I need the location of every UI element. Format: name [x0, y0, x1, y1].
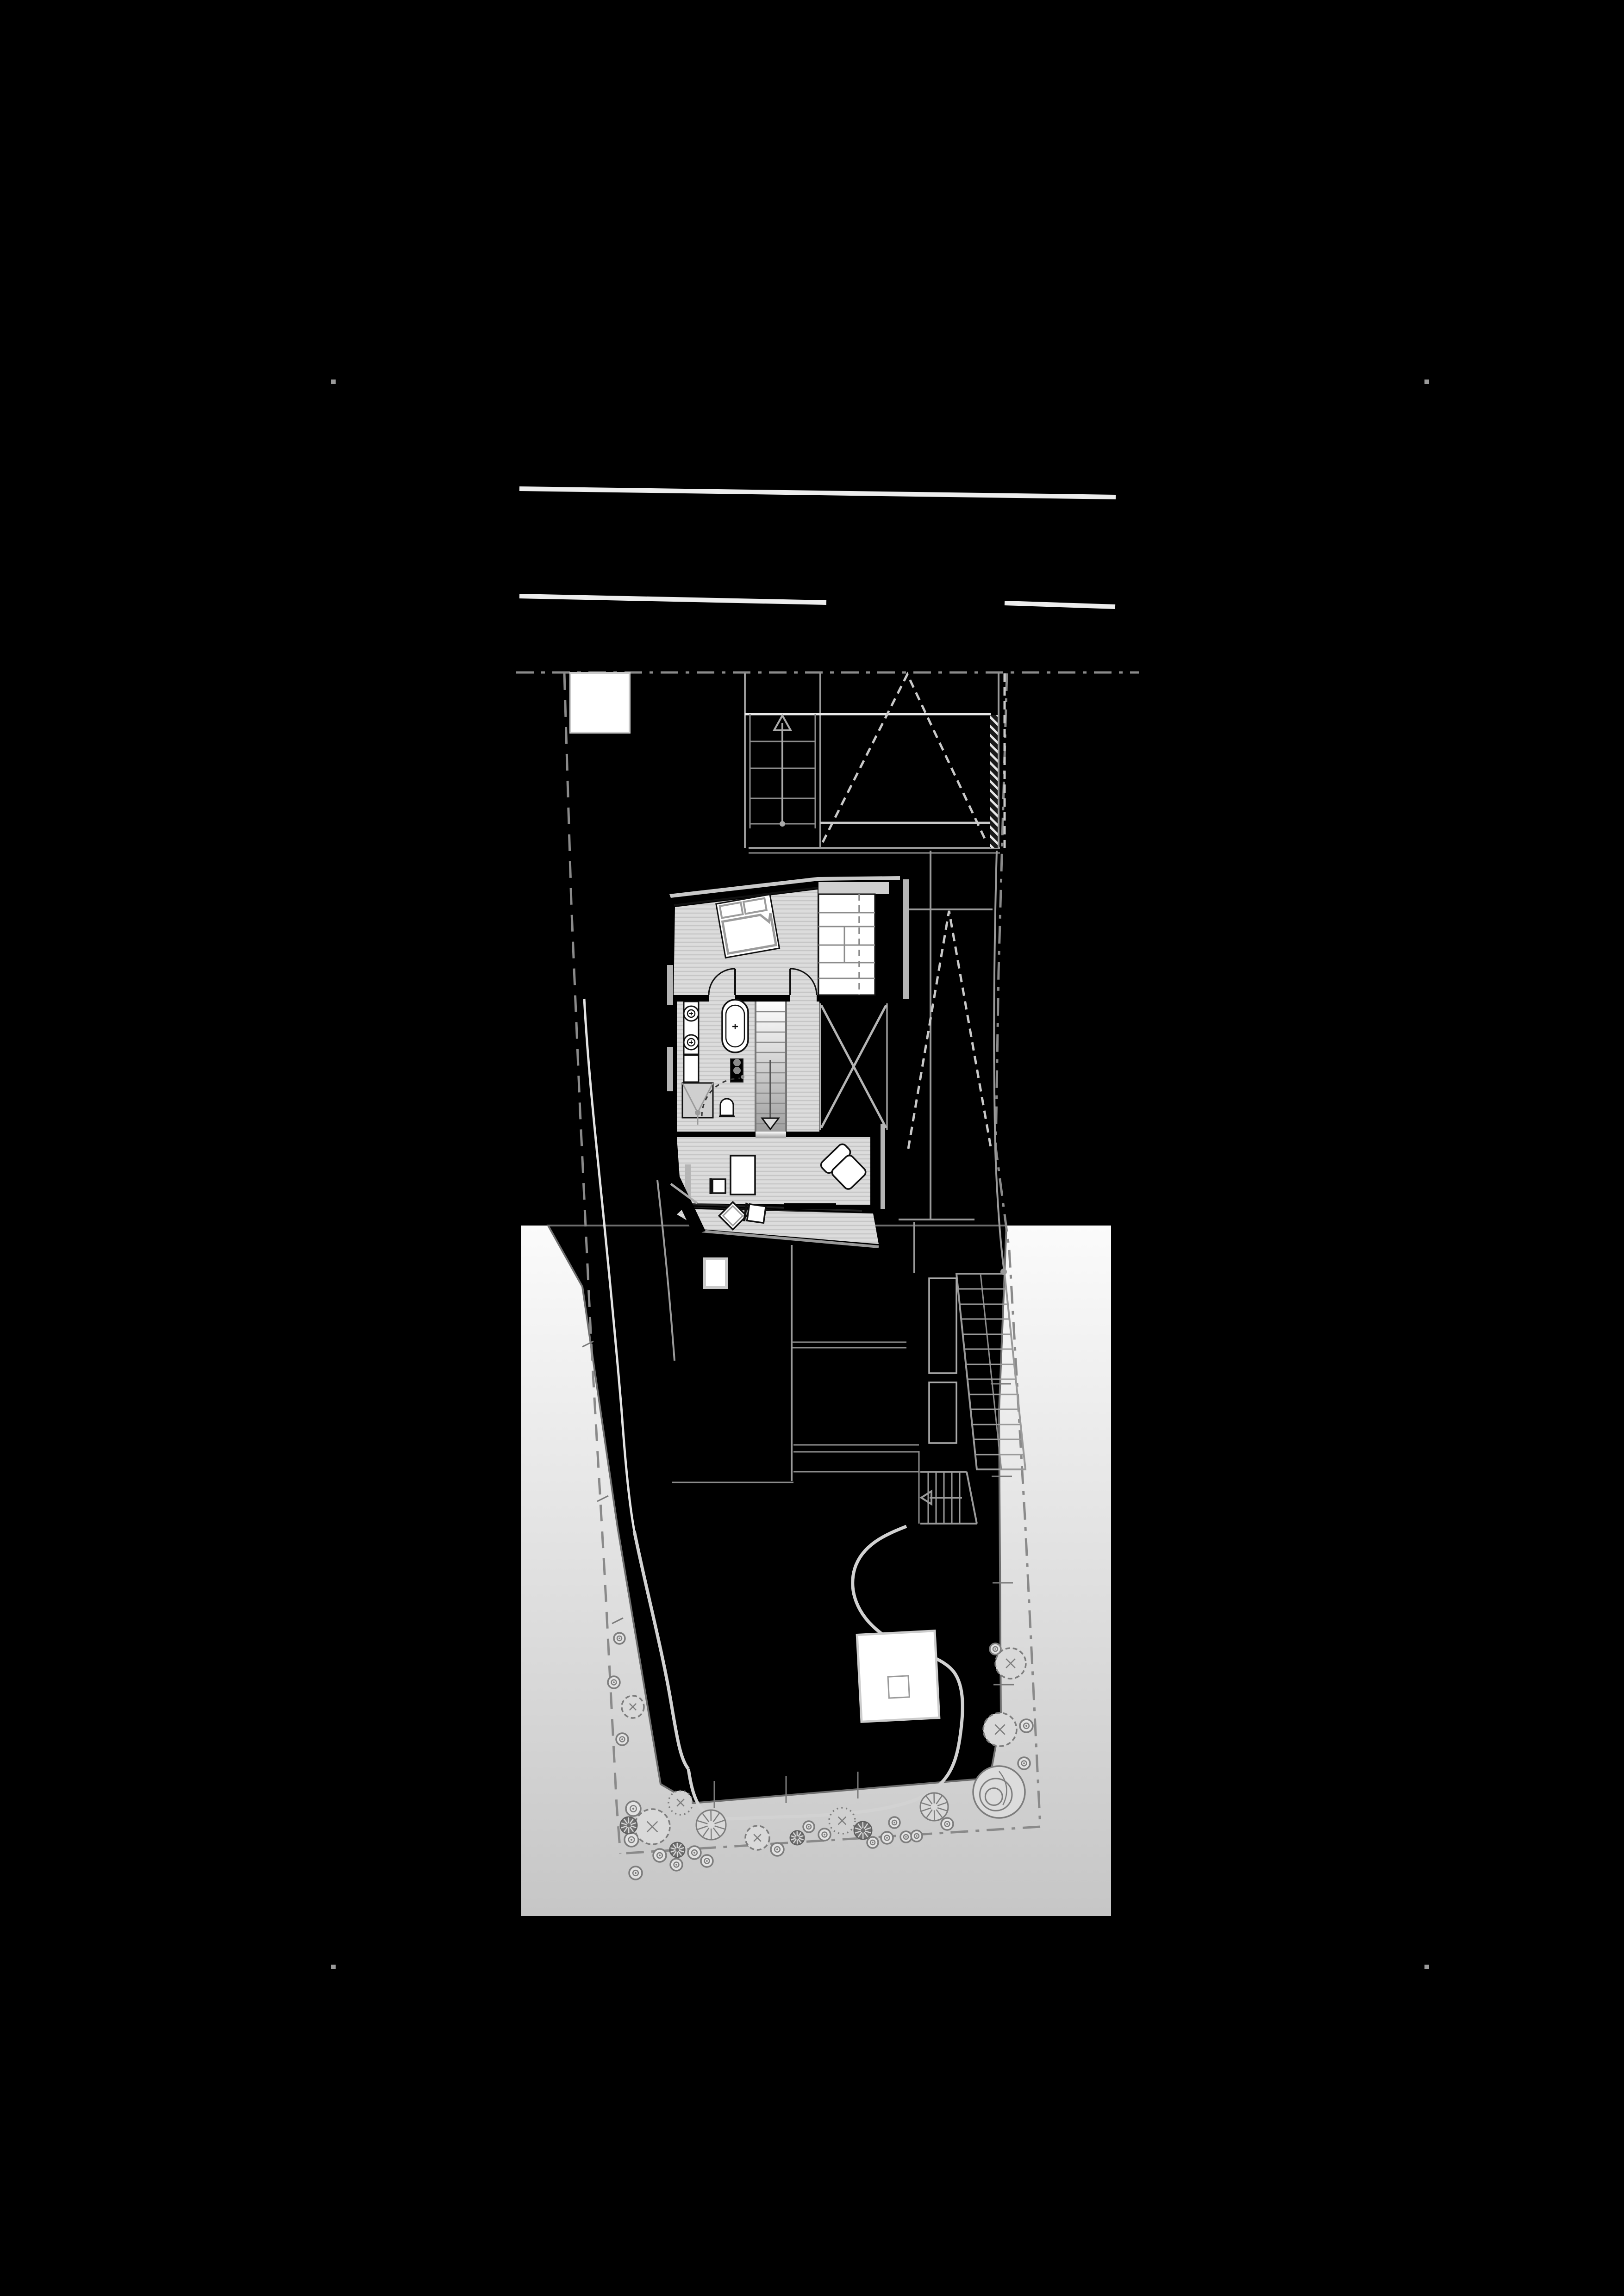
plant-cloud-icon: [983, 1713, 1017, 1746]
desk-chair: [711, 1178, 725, 1194]
plant-spiky-icon: [829, 1808, 855, 1834]
pillow: [743, 898, 767, 914]
plan-sheet: [0, 0, 1624, 2296]
door-panel: [784, 1203, 836, 1209]
plant-flower-icon: [881, 1832, 893, 1844]
bathtub: [722, 1000, 748, 1052]
sink: [684, 1006, 699, 1021]
toilet-icon: [719, 1099, 735, 1116]
plant-flower-icon: [1020, 1719, 1033, 1732]
pillow: [720, 902, 743, 918]
skylight: [705, 1259, 726, 1288]
registration-dot: [1424, 380, 1429, 384]
plant-flower-icon: [867, 1837, 878, 1848]
plant-cloud-icon: [635, 1809, 670, 1844]
landing-floor: [787, 1002, 819, 1132]
parking-pad: [570, 673, 630, 733]
plant-flower-icon: [653, 1849, 666, 1862]
terrace-chair: [744, 1203, 766, 1224]
plant-flower-icon: [941, 1818, 953, 1830]
site-plan-drawing: [0, 0, 1624, 2296]
stair-start-dot: [780, 821, 785, 827]
plant-flower-icon: [818, 1829, 831, 1841]
desk: [731, 1156, 755, 1195]
window-strip: [667, 965, 673, 1005]
middle-block: [668, 1000, 902, 1132]
plant-starburst-icon: [920, 1793, 948, 1821]
plant-flower-icon: [608, 1676, 620, 1688]
plant-starburst-dark-icon: [854, 1822, 872, 1839]
plant-cloud-icon: [745, 1826, 769, 1850]
plant-flower-icon: [900, 1831, 912, 1842]
plant-flower-icon: [670, 1859, 682, 1871]
house: [667, 876, 909, 1247]
plant-flower-icon: [629, 1867, 642, 1879]
plant-flower-icon: [1018, 1757, 1030, 1769]
void-cross-bracing: [819, 1003, 888, 1130]
pavilion: [857, 1631, 939, 1722]
plant-flower-icon: [803, 1821, 814, 1832]
plant-starburst-icon: [696, 1810, 726, 1840]
plant-flower-icon: [626, 1801, 641, 1816]
bed: [716, 895, 780, 958]
window-strip: [667, 1047, 673, 1091]
plant-flower-icon: [771, 1843, 784, 1856]
plant-flower-icon: [990, 1643, 1001, 1655]
registration-dot: [1424, 1965, 1429, 1969]
registration-dot: [331, 380, 336, 384]
east-facade-strip: [903, 879, 909, 999]
plant-starburst-dark-icon: [620, 1817, 637, 1834]
hatched-wall: [990, 715, 998, 848]
plant-flower-icon: [911, 1830, 922, 1842]
plant-flower-icon: [889, 1817, 900, 1828]
registration-dot: [331, 1965, 336, 1969]
plant-flower-icon: [616, 1733, 628, 1745]
vanity-cabinet: [684, 1055, 699, 1082]
sink: [684, 1035, 699, 1050]
planter-box: [929, 1278, 956, 1373]
living-room: [670, 1124, 902, 1222]
main-staircase: [756, 1002, 786, 1132]
plant-flower-icon: [688, 1846, 701, 1859]
plant-starburst-dark-icon: [790, 1831, 804, 1845]
plant-flower-icon: [701, 1855, 713, 1867]
window-strip: [881, 1124, 885, 1209]
plant-cloud-icon: [622, 1696, 644, 1718]
planter-box: [929, 1382, 956, 1443]
plant-rose-icon: [973, 1766, 1025, 1818]
plant-starburst-dark-icon: [670, 1842, 685, 1857]
plant-flower-icon: [614, 1633, 625, 1644]
shower: [682, 1083, 713, 1125]
plant-spiky-icon: [668, 1791, 693, 1815]
